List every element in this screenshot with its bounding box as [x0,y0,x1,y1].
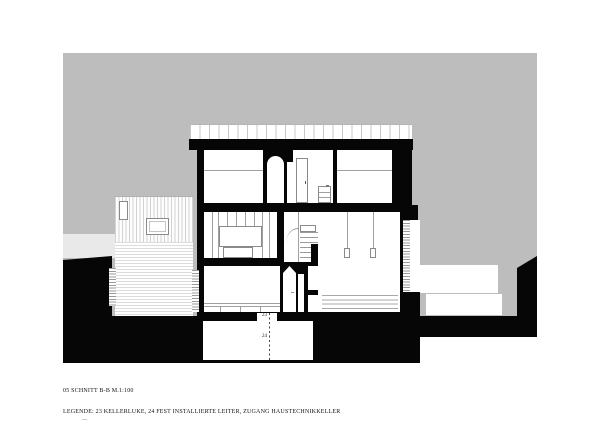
gf-niche-strip [298,274,304,312]
label-cellar-ladder: 24 [258,334,267,340]
drawer-line [319,197,330,198]
terrace-ladder [109,268,116,306]
facade-ladder-left [192,270,199,312]
bed-canopy [219,226,262,247]
drawing-sheet: 23 24 05 SCHNITT B-B M.1:100 LEGENDE: 23… [0,0,600,424]
background-building-far [425,293,503,316]
tiled-stove [283,266,296,312]
counter-line [204,306,280,307]
annex-deck [115,242,193,316]
stair-landing [300,225,316,232]
annex-window [146,218,169,235]
room-attic-left [204,150,263,203]
stairwell [284,212,318,262]
wall-joint-line [337,170,392,171]
page-mark [82,419,87,420]
pendant-lamp [370,248,376,258]
gf-cupboard-upper [308,266,320,290]
cellar-ladder-line [269,313,270,360]
drawing-title: 05 SCHNITT B-B M.1:100 [63,388,483,395]
pendant-cord [373,212,374,248]
wardrobe-line [262,212,263,258]
stair-wall-line [298,212,299,262]
cabinet-divider [240,306,241,312]
cabinet-divider [220,306,221,312]
wardrobe-line [269,212,270,258]
cabinet-divider [260,306,261,312]
bed-outline [223,247,253,258]
background-building-near [410,265,498,293]
door-handle [305,181,306,184]
room-bedroom [204,212,277,258]
counter-line [204,303,280,304]
room-attic-right [337,150,392,203]
facade-ladder-right [403,220,410,292]
pendant-lamp [344,248,350,258]
drawing-legend: LEGENDE: 23 KELLERLUKE, 24 FEST INSTALLI… [63,409,483,416]
room-attic-bath [293,150,333,203]
annex-door [119,201,128,220]
label-cellar-hatch: 23 [257,313,267,319]
roof-cladding [190,124,412,140]
stove-mark [291,292,294,293]
living-room [318,212,400,312]
cellar-room [203,321,313,360]
drawer-line [319,192,330,193]
terrain-left [63,256,112,316]
door-swing-arc [286,228,298,243]
pendant-cord [347,212,348,248]
right-parapet [398,205,418,220]
backdrop-left-wall [63,234,115,258]
attic-door [296,158,308,203]
wall-joint-line [204,170,263,171]
attic-arch-niche [267,156,284,203]
wardrobe-line [212,212,213,258]
bath-sink-cabinet [318,186,331,203]
gf-cupboard-lower [308,295,320,312]
ground-band-right [420,316,537,337]
closet-divider [245,212,246,226]
closet-divider [254,212,255,226]
room-kitchen [204,266,280,312]
faucet-icon [326,185,329,187]
stair-mass [311,244,318,262]
closet-divider [227,212,228,226]
closet-divider [236,212,237,226]
title-block: 05 SCHNITT B-B M.1:100 LEGENDE: 23 KELLE… [63,374,483,424]
living-room-steps [322,295,398,309]
